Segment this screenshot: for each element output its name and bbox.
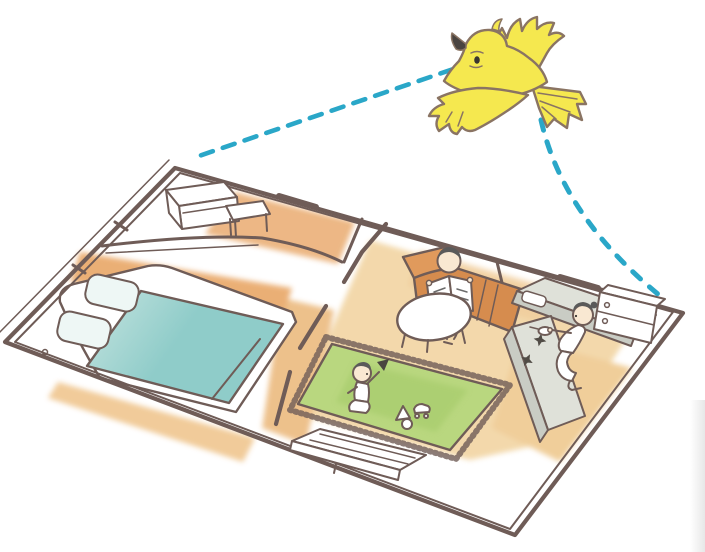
cook-eye xyxy=(575,315,577,317)
study-wall-bottom-inner xyxy=(106,245,258,253)
sightline-right xyxy=(541,120,664,299)
child-body xyxy=(354,382,369,402)
cook-hair-bun xyxy=(591,302,598,309)
bird-beak xyxy=(452,33,467,50)
stool-leg-3 xyxy=(230,219,231,235)
child-legs xyxy=(349,400,369,413)
wall-knob-detail xyxy=(43,350,48,355)
bird-eye xyxy=(474,56,480,64)
bird xyxy=(429,17,586,134)
bird-lower-wing xyxy=(429,88,528,134)
reader-hand-right xyxy=(467,277,472,282)
stool-leg-2 xyxy=(266,214,267,231)
illustration-canvas xyxy=(0,0,705,552)
reader-hand-left xyxy=(426,280,431,285)
birdseye-home-illustration xyxy=(0,0,705,552)
floor-plan xyxy=(0,160,683,535)
cook-hand xyxy=(548,328,552,332)
stool-leg-1 xyxy=(235,220,236,237)
child-eye xyxy=(366,373,368,375)
page-edge-shadow xyxy=(690,400,705,552)
toy-ball xyxy=(402,419,412,429)
